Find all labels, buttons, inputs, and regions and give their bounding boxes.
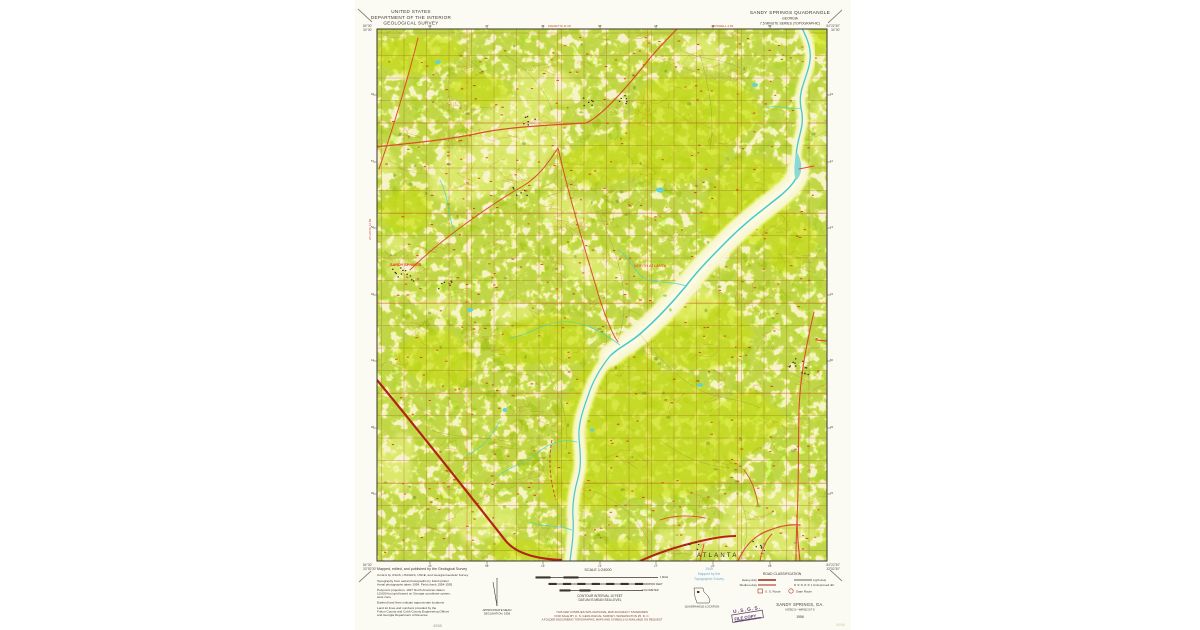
svg-text:18: 18: [371, 292, 375, 296]
svg-text:Control by USGS, USC&GS, USCE,: Control by USGS, USC&GS, USCE, and Georg…: [377, 573, 469, 577]
svg-text:19: 19: [830, 92, 834, 96]
svg-text:Mapped, edited, and published: Mapped, edited, and published by the Geo…: [377, 567, 467, 571]
svg-text:12: 12: [830, 159, 834, 163]
svg-text:DEPARTMENT OF THE INTERIOR: DEPARTMENT OF THE INTERIOR: [371, 15, 452, 20]
svg-text:4555: 4555: [433, 623, 443, 628]
svg-text:Unimproved dirt: Unimproved dirt: [813, 583, 834, 587]
svg-text:Medium-duty: Medium-duty: [740, 583, 758, 587]
svg-text:ATLANTA 12 MI.: ATLANTA 12 MI.: [368, 218, 372, 240]
svg-text:and Georgia Department of Reve: and Georgia Department of Revenue: [377, 613, 428, 617]
svg-text:18: 18: [371, 92, 375, 96]
svg-text:33°52'30": 33°52'30": [826, 567, 840, 571]
svg-text:1956: 1956: [796, 615, 804, 619]
svg-text:7000 FEET: 7000 FEET: [649, 582, 663, 586]
svg-text:1 MILE: 1 MILE: [660, 575, 668, 579]
svg-text:DATUM IS MEAN SEA LEVEL: DATUM IS MEAN SEA LEVEL: [579, 598, 622, 602]
svg-text:N3352.5—W8422.5/7.5: N3352.5—W8422.5/7.5: [785, 608, 815, 612]
svg-text:44: 44: [371, 358, 375, 362]
svg-text:GEORGIA: GEORGIA: [782, 17, 799, 21]
svg-text:57: 57: [371, 159, 375, 163]
svg-text:Dashed land lines indicate app: Dashed land lines indicate approximate l…: [377, 601, 445, 605]
svg-text:33°52'30": 33°52'30": [363, 567, 377, 571]
svg-text:38: 38: [371, 425, 375, 429]
svg-text:43: 43: [830, 425, 834, 429]
svg-text:34°00': 34°00': [831, 28, 840, 32]
svg-text:DECLINATION, 1956: DECLINATION, 1956: [484, 612, 511, 616]
svg-text:4555: 4555: [836, 622, 846, 627]
svg-text:UNITED STATES: UNITED STATES: [391, 9, 430, 14]
svg-text:1 KILOMETER: 1 KILOMETER: [641, 588, 658, 592]
svg-text:23: 23: [830, 491, 834, 495]
svg-text:56: 56: [830, 358, 834, 362]
svg-text:13: 13: [830, 225, 834, 229]
svg-text:ROSWELL 4 MI.: ROSWELL 4 MI.: [712, 24, 734, 28]
svg-text:SANDY SPRINGS QUADRANGLE: SANDY SPRINGS QUADRANGLE: [750, 10, 830, 16]
svg-text:Heavy-duty: Heavy-duty: [742, 578, 758, 582]
svg-text:west zone: west zone: [377, 595, 391, 599]
svg-text:U. S. Route: U. S. Route: [765, 590, 781, 594]
svg-text:A FOLDER DESCRIBING TOPOGRAPHI: A FOLDER DESCRIBING TOPOGRAPHIC MAPS AND…: [542, 618, 663, 622]
svg-text:Mapped by the: Mapped by the: [698, 572, 721, 576]
svg-text:Topographic Survey: Topographic Survey: [694, 577, 724, 581]
svg-text:1949: 1949: [705, 567, 713, 571]
svg-text:ROAD CLASSIFICATION: ROAD CLASSIFICATION: [763, 572, 802, 576]
svg-text:SANDY SPRINGS, GA.: SANDY SPRINGS, GA.: [776, 602, 824, 607]
svg-text:34°00': 34°00': [363, 28, 372, 32]
svg-text:QUADRANGLE LOCATION: QUADRANGLE LOCATION: [685, 605, 719, 609]
svg-text:MARIETTA 11 MI.: MARIETTA 11 MI.: [548, 24, 572, 28]
svg-text:36: 36: [371, 491, 375, 495]
svg-text:Light-duty: Light-duty: [813, 578, 827, 582]
svg-text:24: 24: [830, 292, 834, 296]
svg-text:Aerial photographs taken 1954.: Aerial photographs taken 1954. Field che…: [377, 583, 452, 587]
svg-text:SCALE 1:24000: SCALE 1:24000: [584, 568, 611, 572]
svg-text:State Route: State Route: [796, 590, 812, 594]
